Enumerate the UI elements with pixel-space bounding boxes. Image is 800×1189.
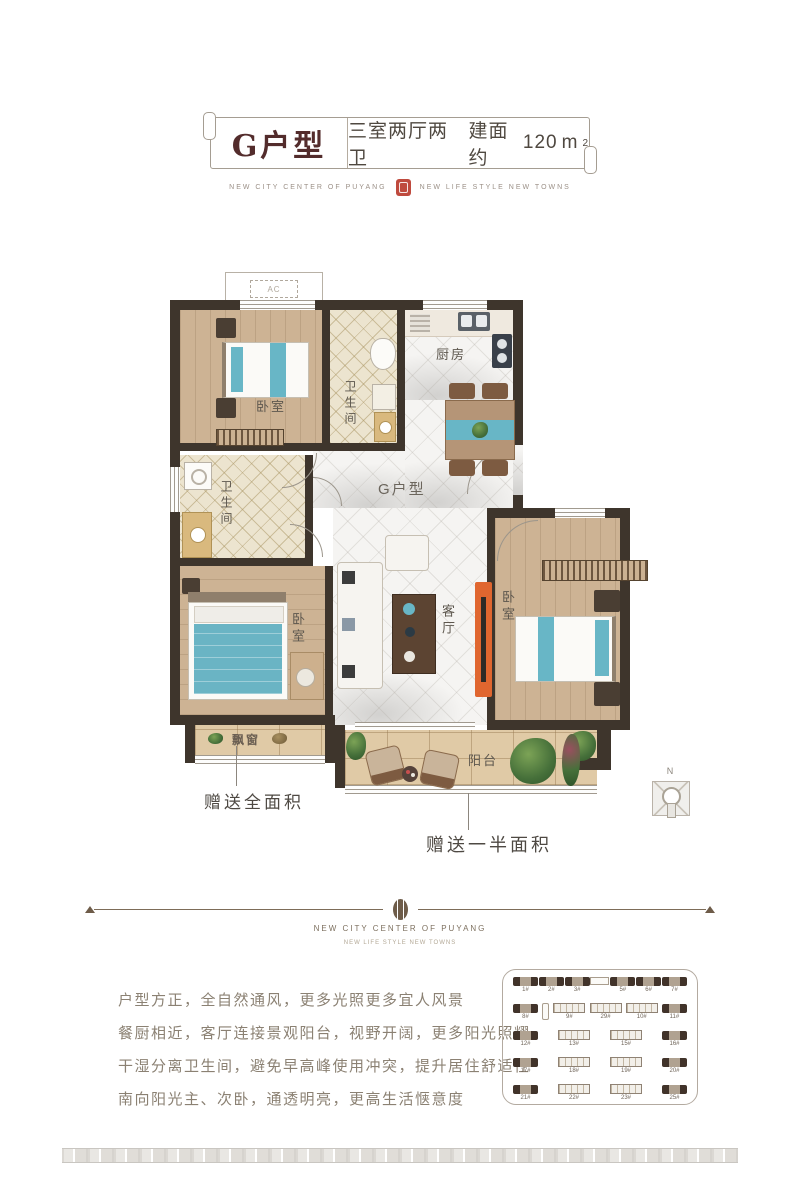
coffee-table	[392, 594, 436, 674]
siteplan-building: 16#	[662, 1031, 687, 1047]
kitchen-appliance	[410, 314, 430, 332]
brand-right-text: NEW LIFE STYLE NEW TOWNS	[420, 184, 571, 191]
siteplan-building: 8#	[513, 1004, 538, 1020]
shower	[372, 384, 396, 410]
balcony-table	[402, 766, 418, 782]
bed	[222, 342, 309, 398]
siteplan-building-shape	[565, 977, 590, 986]
unit-spec-row: 三室两厅两卫 建面约120m2	[348, 118, 589, 168]
divider-brand-subtitle: NEW LIFE STYLE NEW TOWNS	[0, 940, 800, 946]
balcony-plant	[510, 738, 556, 784]
description-line: 餐厨相近，客厅连接景观阳台，视野开阔，更多阳光照耀	[118, 1017, 531, 1050]
unit-label-center: G户型	[378, 478, 426, 499]
siteplan-building: 2#	[539, 977, 564, 993]
description-line: 干湿分离卫生间，避免早高峰使用冲突，提升居住舒适性	[118, 1050, 531, 1083]
wall	[322, 308, 330, 450]
siteplan-building-shape	[610, 1084, 642, 1094]
siteplan-building: 5#	[610, 977, 635, 993]
bed	[188, 602, 288, 700]
siteplan-building-shape	[590, 1003, 622, 1013]
bay-window-glass	[195, 755, 325, 764]
siteplan-building-shape	[662, 1085, 687, 1094]
bay-plant	[208, 733, 223, 744]
divider-brand-title: NEW CITY CENTER OF PUYANG	[0, 924, 800, 933]
siteplan-building-label: 12#	[520, 1041, 530, 1047]
siteplan-building-shape	[610, 1030, 642, 1040]
siteplan-building: 1#	[513, 977, 538, 993]
siteplan-building	[590, 977, 609, 993]
bed-runner	[270, 343, 286, 397]
siteplan-building-label: 15#	[621, 1041, 631, 1047]
stove	[492, 334, 512, 368]
siteplan-building: 15#	[610, 1030, 642, 1047]
wardrobe	[216, 429, 284, 446]
siteplan-building: 18#	[558, 1057, 590, 1074]
siteplan-building: 22#	[558, 1084, 590, 1101]
toilet	[370, 338, 396, 370]
annotation-full-area: 赠送全面积	[204, 788, 304, 813]
siteplan-building-label: 9#	[566, 1014, 573, 1020]
siteplan-building-shape	[513, 1058, 538, 1067]
wall	[490, 720, 630, 730]
siteplan-building-shape	[542, 1003, 549, 1020]
wall	[397, 308, 405, 443]
bottom-border-strip	[62, 1148, 738, 1163]
siteplan-building: 6#	[636, 977, 661, 993]
brand-left-text: NEW CITY CENTER OF PUYANG	[229, 184, 386, 191]
siteplan-building	[542, 1003, 549, 1020]
area-unit: m	[562, 132, 579, 154]
siteplan-building-shape	[610, 1057, 642, 1067]
sofa	[337, 562, 383, 689]
desk-chair	[296, 668, 315, 687]
siteplan-building-shape	[558, 1030, 590, 1040]
siteplan-building-shape	[539, 977, 564, 986]
siteplan-building: 20#	[662, 1058, 687, 1074]
siteplan-building: 12#	[513, 1031, 538, 1047]
flyer-page: G户型 三室两厅两卫 建面约120m2 NEW CITY CENTER OF P…	[0, 0, 800, 1189]
wall	[170, 558, 313, 566]
siteplan-building: 3#	[565, 977, 590, 993]
bed-pillows	[595, 620, 609, 676]
wall	[185, 725, 195, 763]
bath-sink	[374, 412, 396, 442]
siteplan-building-label: 13#	[569, 1041, 579, 1047]
room-label-living: 客厅	[438, 604, 457, 638]
bedroom-master-door-arc	[290, 524, 323, 557]
window	[240, 300, 315, 310]
area-prefix: 建面约	[469, 116, 519, 170]
siteplan-building-shape	[636, 977, 661, 986]
siteplan-building-label: 11#	[670, 1014, 680, 1020]
nightstand	[594, 590, 620, 612]
table-plant	[472, 422, 488, 438]
siteplan-building-label: 5#	[619, 987, 626, 993]
ac-label: AC	[250, 280, 298, 298]
floor-plan: AC	[170, 272, 630, 820]
siteplan-building-label: 2#	[548, 987, 555, 993]
siteplan-building-shape	[610, 977, 635, 986]
room-label-bedroom-top: 卧室	[256, 396, 286, 415]
wall	[170, 300, 180, 725]
siteplan-building: 10#	[626, 1003, 658, 1020]
wall	[170, 715, 335, 725]
siteplan-building: 23#	[610, 1084, 642, 1101]
siteplan-building: 29#	[590, 1003, 622, 1020]
bay-plant	[272, 733, 287, 744]
siteplan-building-shape	[513, 977, 538, 986]
unit-spec: 三室两厅两卫	[348, 116, 449, 170]
dining-chair	[449, 383, 475, 399]
room-label-bedroom-right: 卧室	[498, 590, 517, 624]
siteplan-building-shape	[558, 1084, 590, 1094]
siteplan-building-shape	[662, 1058, 687, 1067]
siteplan-building-label: 16#	[669, 1041, 679, 1047]
bed-pillows	[231, 347, 243, 392]
siteplan-building-label: 20#	[669, 1068, 679, 1074]
siteplan-building: 19#	[610, 1057, 642, 1074]
siteplan-building: 25#	[662, 1085, 687, 1101]
siteplan-building-shape	[662, 977, 687, 986]
siteplan-building: 9#	[553, 1003, 585, 1020]
unit-name: G户型	[211, 118, 348, 168]
siteplan-building-label: 1#	[522, 987, 529, 993]
siteplan-building-label: 6#	[645, 987, 652, 993]
leader-line	[236, 746, 237, 786]
leader-line	[468, 793, 469, 830]
room-label-bedroom-master: 卧室	[288, 612, 307, 646]
siteplan-building-label: 10#	[637, 1014, 647, 1020]
siteplan-building-shape	[626, 1003, 658, 1013]
description-line: 南向阳光主、次卧，通透明亮，更高生活惬意度	[118, 1083, 531, 1116]
armchair	[385, 535, 429, 571]
siteplan-building-shape	[590, 977, 609, 985]
wall	[335, 725, 345, 788]
siteplan-building-label: 3#	[574, 987, 581, 993]
balcony-sliding-door	[355, 722, 475, 729]
siteplan-building-label: 17#	[520, 1068, 530, 1074]
description: 户型方正，全自然通风，更多光照更多宜人风景 餐厨相近，客厅连接景观阳台，视野开阔…	[118, 984, 531, 1116]
section-divider	[85, 898, 715, 920]
nightstand	[216, 318, 236, 338]
headboard	[188, 592, 286, 602]
siteplan-building-shape	[513, 1085, 538, 1094]
siteplan-building-shape	[513, 1004, 538, 1013]
siteplan-building-label: 22#	[569, 1095, 579, 1101]
siteplan-building-shape	[558, 1057, 590, 1067]
siteplan-building-shape	[662, 1031, 687, 1040]
room-label-balcony: 阳台	[468, 750, 498, 769]
siteplan-building-label: 19#	[621, 1068, 631, 1074]
wall	[170, 443, 405, 451]
dining-table	[445, 400, 515, 460]
wardrobe	[542, 560, 648, 581]
dining-chair	[482, 383, 508, 399]
siteplan-building-label: 7#	[671, 987, 678, 993]
divider-arrow-right-icon	[705, 906, 715, 913]
siteplan-building: 21#	[513, 1085, 538, 1101]
brand-seal-icon	[396, 179, 411, 196]
siteplan-building-label: 25#	[669, 1095, 679, 1101]
siteplan-building-shape	[662, 1004, 687, 1013]
room-label-bath-mid: 卫生间	[218, 480, 235, 528]
area-sup: 2	[582, 138, 589, 149]
dining-chair	[482, 460, 508, 476]
balcony-plant	[346, 732, 366, 760]
siteplan-building-shape	[553, 1003, 585, 1013]
brand-row: NEW CITY CENTER OF PUYANG NEW LIFE STYLE…	[0, 179, 800, 196]
kitchen-sink	[458, 312, 490, 331]
divider-ornament-icon	[393, 899, 408, 920]
siteplan-building-label: 21#	[520, 1095, 530, 1101]
duvet	[194, 624, 282, 694]
bed	[515, 616, 616, 682]
balcony-plant	[562, 734, 580, 786]
window	[423, 300, 487, 310]
header-banner: G户型 三室两厅两卫 建面约120m2	[210, 117, 590, 169]
room-label-bath-top: 卫生间	[342, 380, 359, 428]
siteplan-building: 13#	[558, 1030, 590, 1047]
siteplan-building-label: 18#	[569, 1068, 579, 1074]
nightstand	[216, 398, 236, 418]
tv-wall	[475, 582, 492, 697]
site-plan: 1#2#3#5#6#7# 8#9#29#10#11# 12#13#15#16# …	[502, 969, 698, 1105]
wall	[325, 566, 333, 715]
room-label-kitchen: 厨房	[436, 344, 466, 363]
compass-north-label: N	[652, 766, 688, 776]
lounge-chair	[419, 749, 461, 791]
siteplan-building-label: 23#	[621, 1095, 631, 1101]
bath-sink	[182, 512, 212, 558]
area-value: 120	[523, 132, 558, 154]
washer	[184, 462, 212, 490]
siteplan-building: 11#	[662, 1004, 687, 1020]
wall	[325, 725, 335, 763]
wall	[620, 508, 630, 730]
siteplan-building: 7#	[662, 977, 687, 993]
compass-icon	[652, 781, 690, 816]
siteplan-building: 17#	[513, 1058, 538, 1074]
balcony-window-glass	[345, 785, 597, 794]
bed-runner	[538, 617, 554, 681]
siteplan-building-label: 29#	[601, 1014, 611, 1020]
window	[170, 467, 180, 512]
siteplan-building-label: 8#	[522, 1014, 529, 1020]
dining-chair	[449, 460, 475, 476]
nightstand	[594, 682, 620, 706]
siteplan-building-shape	[513, 1031, 538, 1040]
window	[555, 508, 605, 518]
description-line: 户型方正，全自然通风，更多光照更多宜人风景	[118, 984, 531, 1017]
annotation-half-area: 赠送一半面积	[426, 831, 552, 857]
